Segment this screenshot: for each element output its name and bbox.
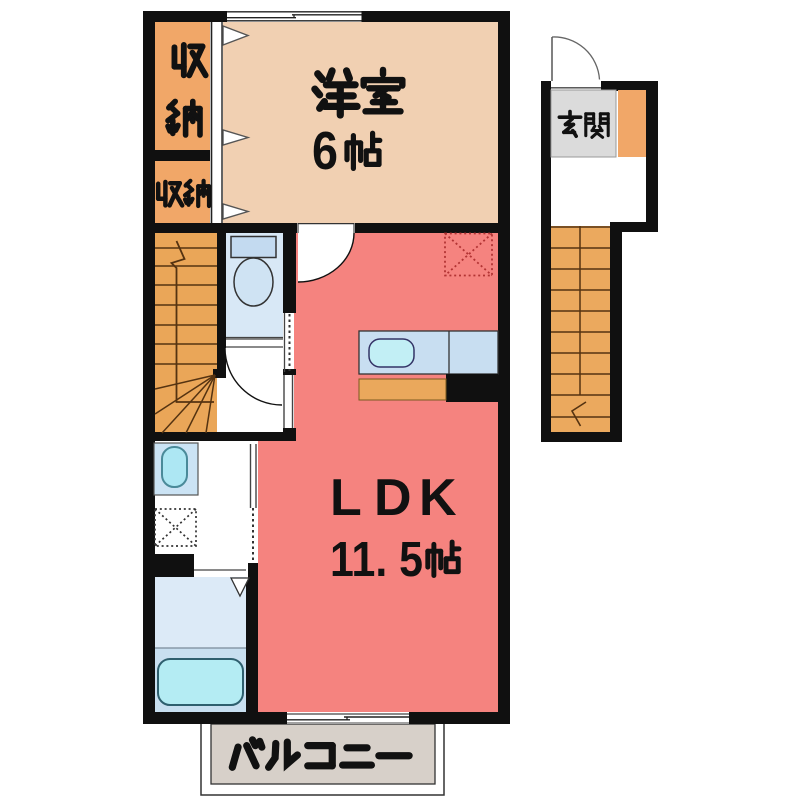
svg-text:6: 6 xyxy=(312,121,338,181)
svg-text:K: K xyxy=(419,469,457,527)
svg-text:D: D xyxy=(374,469,412,527)
svg-text:11. 5: 11. 5 xyxy=(330,533,423,587)
svg-text:L: L xyxy=(330,469,362,527)
